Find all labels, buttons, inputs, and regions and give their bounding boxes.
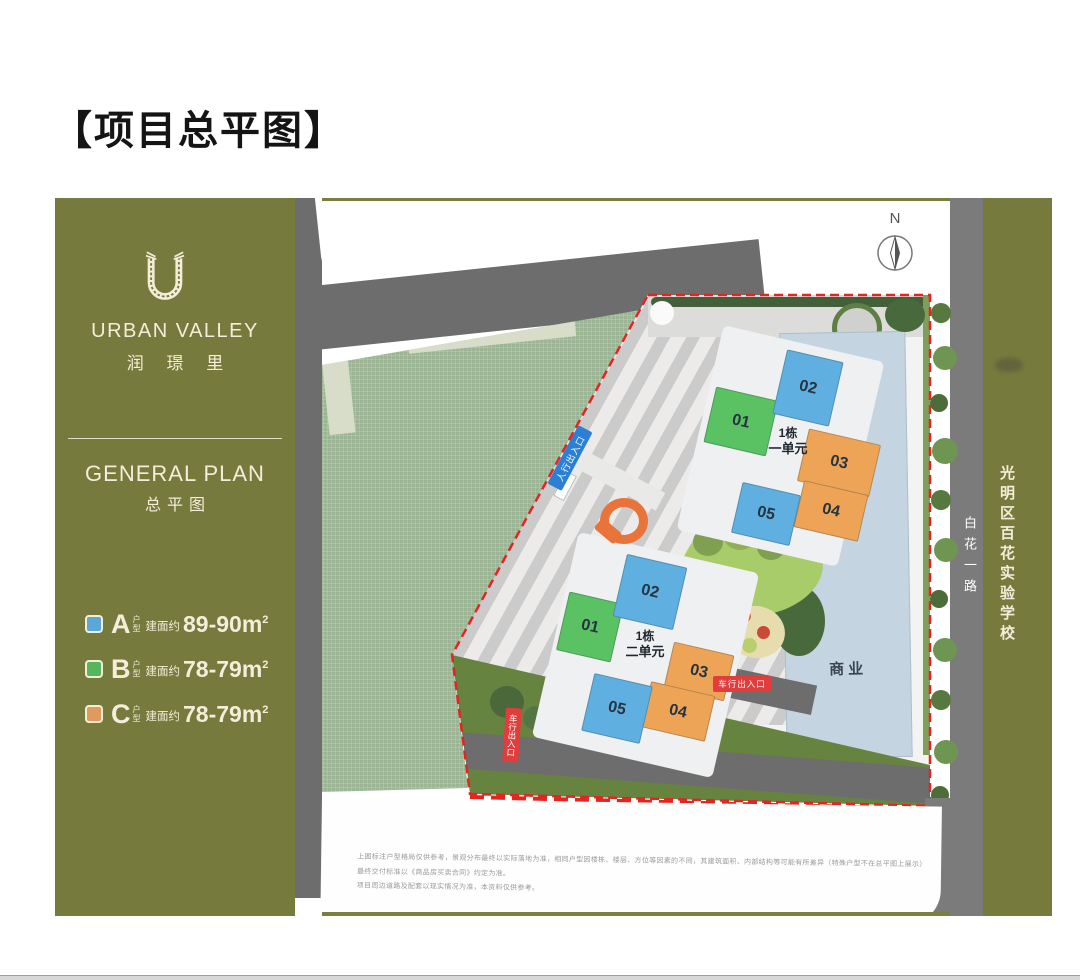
street-tree bbox=[934, 740, 958, 764]
brand-sidebar: URBAN VALLEY 润 璟 里 GENERAL PLAN 总平图 A 户型… bbox=[55, 198, 295, 916]
type-b-area: 78-79m2 bbox=[183, 658, 268, 681]
street-tree bbox=[930, 590, 948, 608]
type-b-suffix: 户型 bbox=[133, 660, 141, 678]
type-a-suffix: 户型 bbox=[133, 615, 141, 633]
type-b-letter: B bbox=[111, 656, 131, 683]
page: 【项目总平图】 URBAN VALLEY 润 璟 里 GENERAL PLAN … bbox=[0, 0, 1080, 980]
street-tree bbox=[934, 538, 958, 562]
type-a-area-prefix: 建面约 bbox=[146, 618, 181, 634]
site-plan-map: 商业 bbox=[295, 198, 1052, 916]
brand-name-cn: 润 璟 里 bbox=[55, 349, 295, 374]
south-parcel: 上图标注户型格局仅供参考，景观分布最终以实际落地为准，相同户型因楼栋、楼层、方位… bbox=[320, 798, 942, 916]
type-a-color-swatch bbox=[85, 615, 103, 633]
section-title-cn: 总平图 bbox=[55, 491, 295, 515]
next-section-edge bbox=[0, 975, 1080, 980]
street-tree bbox=[932, 438, 958, 464]
street-tree bbox=[933, 346, 957, 370]
compass-icon bbox=[873, 227, 917, 275]
unit-type-legend: A 户型 建面约 89-90m2 B 户型 建面约 bbox=[85, 610, 289, 745]
map-smudge bbox=[995, 358, 1023, 372]
street-tree bbox=[933, 638, 957, 662]
street-tree bbox=[931, 303, 951, 323]
street-tree bbox=[930, 394, 948, 412]
type-a-letter: A bbox=[111, 611, 131, 638]
north-arrow-icon: N bbox=[873, 210, 917, 280]
type-c-letter: C bbox=[111, 701, 131, 728]
brand-name-en: URBAN VALLEY bbox=[55, 320, 295, 343]
street-tree bbox=[931, 690, 951, 710]
school-label: 光明区百花实验学校 bbox=[996, 465, 1017, 645]
type-c-area-prefix: 建面约 bbox=[146, 708, 181, 724]
section-title-en: GENERAL PLAN bbox=[55, 461, 295, 487]
urban-valley-logo-icon bbox=[139, 248, 191, 312]
page-title: 【项目总平图】 bbox=[52, 98, 346, 156]
type-c-suffix: 户型 bbox=[133, 705, 141, 723]
disclaimer-text: 上图标注户型格局仅供参考，景观分布最终以实际落地为准，相同户型因楼栋、楼层、方位… bbox=[357, 850, 926, 902]
general-plan-figure: URBAN VALLEY 润 璟 里 GENERAL PLAN 总平图 A 户型… bbox=[55, 198, 1052, 916]
sidebar-divider bbox=[68, 438, 282, 439]
type-c-color-swatch bbox=[85, 705, 103, 723]
legend-row-b: B 户型 建面约 78-79m2 bbox=[85, 655, 289, 683]
type-a-area: 89-90m2 bbox=[183, 613, 268, 636]
type-b-color-swatch bbox=[85, 660, 103, 678]
type-c-area: 78-79m2 bbox=[183, 703, 268, 726]
north-label: N bbox=[873, 210, 917, 227]
street-tree bbox=[931, 490, 951, 510]
plan-top-border bbox=[322, 198, 950, 201]
legend-row-a: A 户型 建面约 89-90m2 bbox=[85, 610, 289, 638]
type-b-area-prefix: 建面约 bbox=[146, 663, 181, 679]
legend-row-c: C 户型 建面约 78-79m2 bbox=[85, 700, 289, 728]
plan-bottom-border bbox=[322, 912, 950, 916]
school-parcel: 光明区百花实验学校 bbox=[983, 198, 1052, 916]
